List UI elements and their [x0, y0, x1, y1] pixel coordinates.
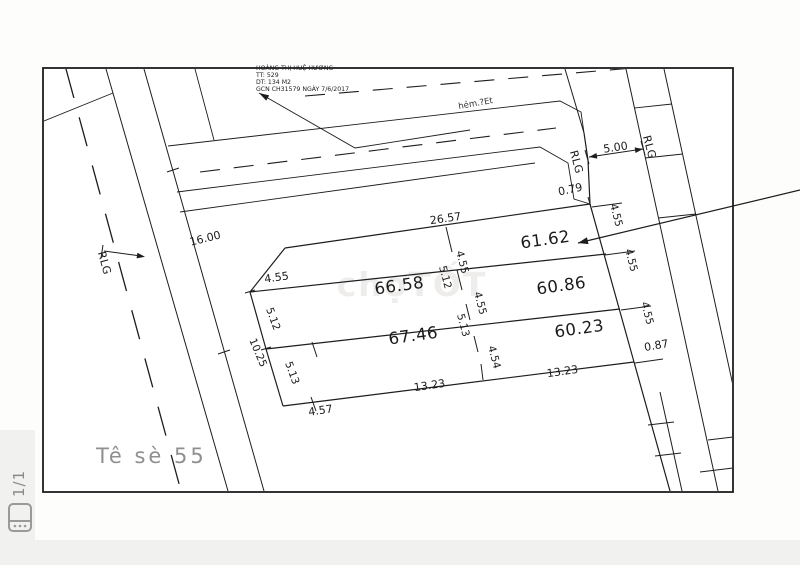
owner-name: HOÀNG THỊ HUỆ HƯƠNG — [256, 63, 334, 72]
owner-certificate: GCN CH31579 NGÀY 7/6/2017 — [256, 84, 349, 93]
gallery-icon-dots — [14, 525, 27, 528]
survey-drawing: chợTỐT — [0, 0, 800, 565]
owner-parcel-no: TT: 529 — [255, 72, 279, 79]
sheet-number-label: Tê sè 55 — [95, 444, 207, 468]
image-viewer: chợTỐT — [0, 0, 800, 565]
owner-area: DT: 134 M2 — [256, 79, 291, 86]
page-indicator: 1/1 — [10, 470, 28, 497]
viewer-bottom-strip — [0, 540, 800, 565]
